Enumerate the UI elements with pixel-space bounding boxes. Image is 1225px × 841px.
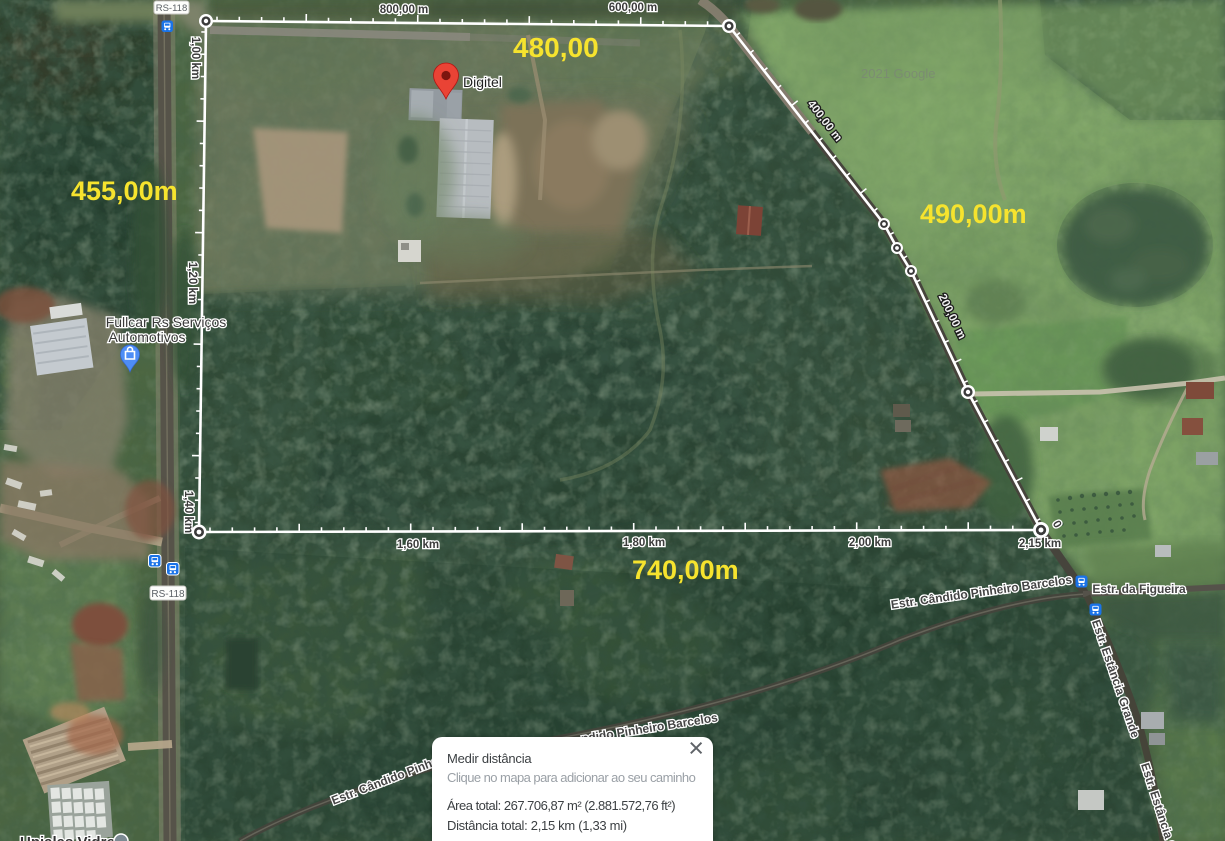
svg-text:740,00m: 740,00m [632,555,739,585]
svg-text:Unialas Vidros: Unialas Vidros [20,834,124,841]
svg-text:480,00: 480,00 [513,32,599,63]
svg-text:RS-118: RS-118 [151,589,185,600]
svg-text:2,00 km: 2,00 km [849,537,891,549]
svg-text:490,00m: 490,00m [920,199,1027,229]
svg-text:RS-118: RS-118 [156,3,188,14]
svg-text:800,00 m: 800,00 m [380,4,429,16]
svg-text:Digitel: Digitel [463,74,502,90]
svg-text:1,40 km: 1,40 km [182,491,194,533]
svg-text:1,00 km: 1,00 km [189,37,201,79]
svg-text:1,20 km: 1,20 km [186,262,198,304]
svg-text:Estr. da Figueira: Estr. da Figueira [1092,582,1186,596]
svg-text:1,60 km: 1,60 km [397,539,439,551]
svg-text:1,80 km: 1,80 km [623,537,665,549]
svg-text:2021 Google: 2021 Google [861,66,935,81]
svg-text:455,00m: 455,00m [71,176,178,206]
svg-text:600,00 m: 600,00 m [609,2,658,14]
svg-text:Automotivos: Automotivos [108,329,185,345]
svg-text:2,15 km: 2,15 km [1019,538,1061,550]
svg-text:Fullcar Rs Serviços: Fullcar Rs Serviços [106,314,227,330]
